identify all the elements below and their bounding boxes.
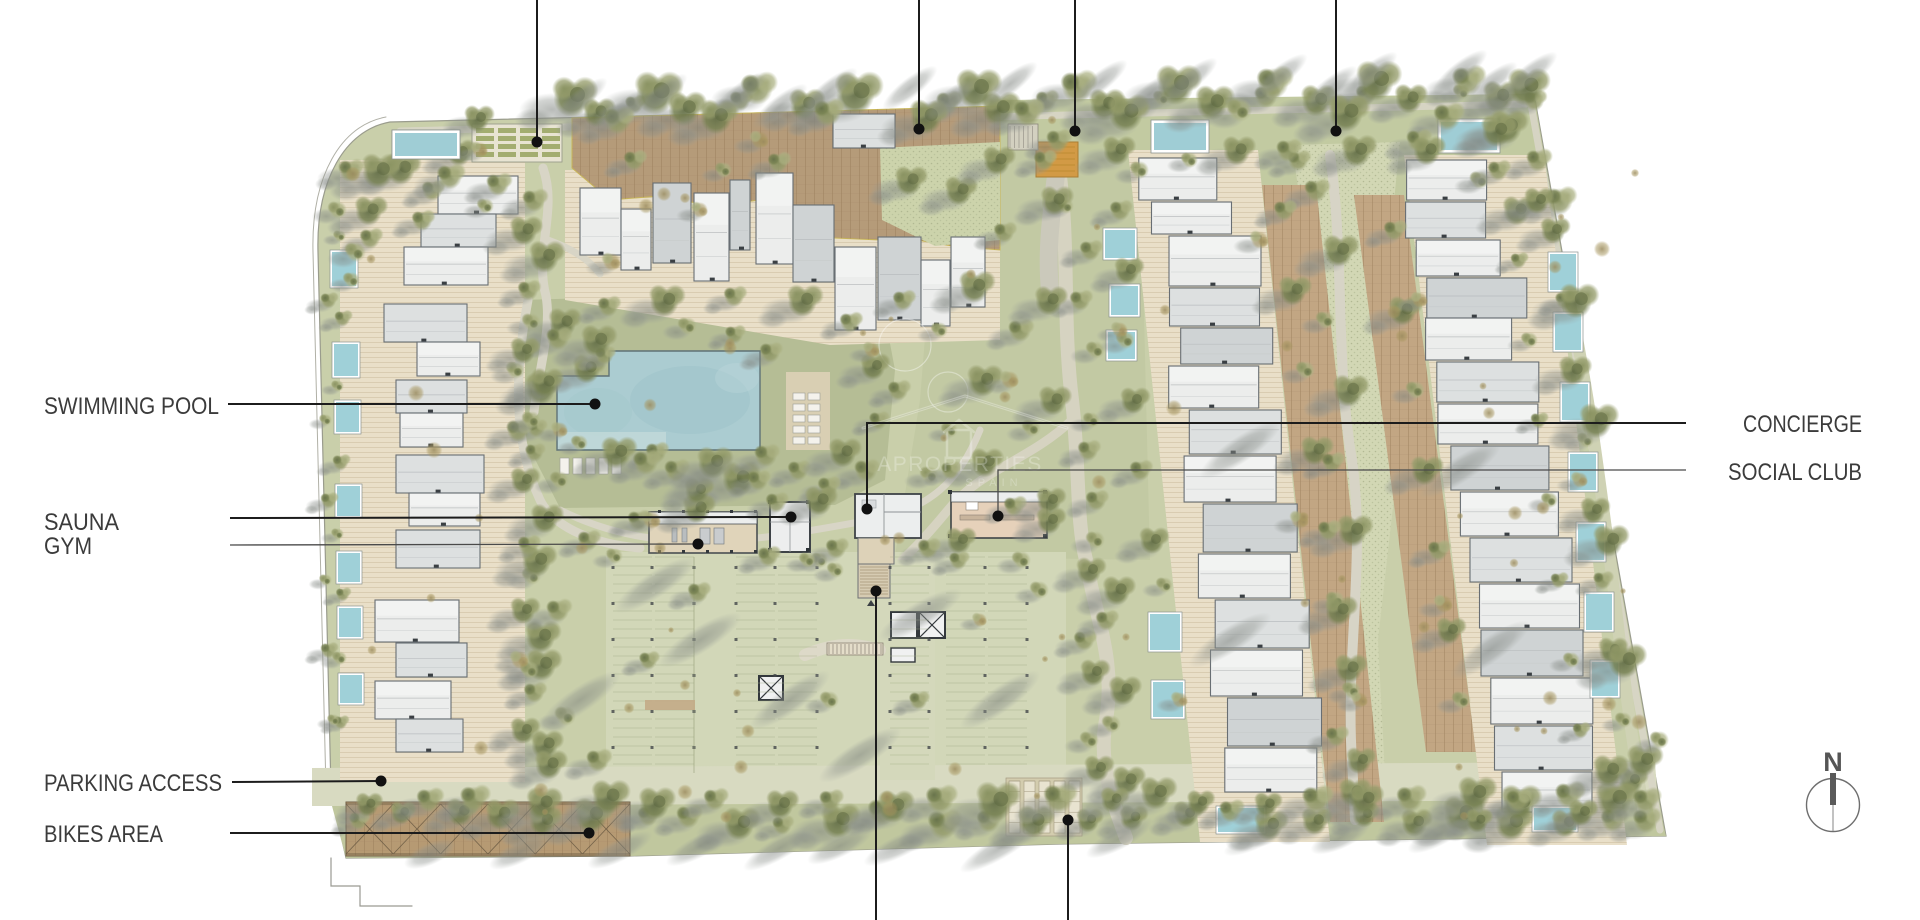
svg-text:SOCIAL CLUB: SOCIAL CLUB <box>1728 459 1862 486</box>
svg-text:APROPERTIES: APROPERTIES <box>877 453 1043 476</box>
svg-text:SPAIN: SPAIN <box>965 477 1022 489</box>
svg-text:CONCIERGE: CONCIERGE <box>1743 411 1862 438</box>
svg-text:SWIMMING POOL: SWIMMING POOL <box>44 393 219 420</box>
svg-text:PARKING ACCESS: PARKING ACCESS <box>44 770 222 797</box>
svg-text:N: N <box>1823 747 1843 777</box>
svg-text:BIKES AREA: BIKES AREA <box>44 821 163 848</box>
svg-text:GYM: GYM <box>44 533 92 560</box>
svg-text:SAUNA: SAUNA <box>44 509 119 536</box>
